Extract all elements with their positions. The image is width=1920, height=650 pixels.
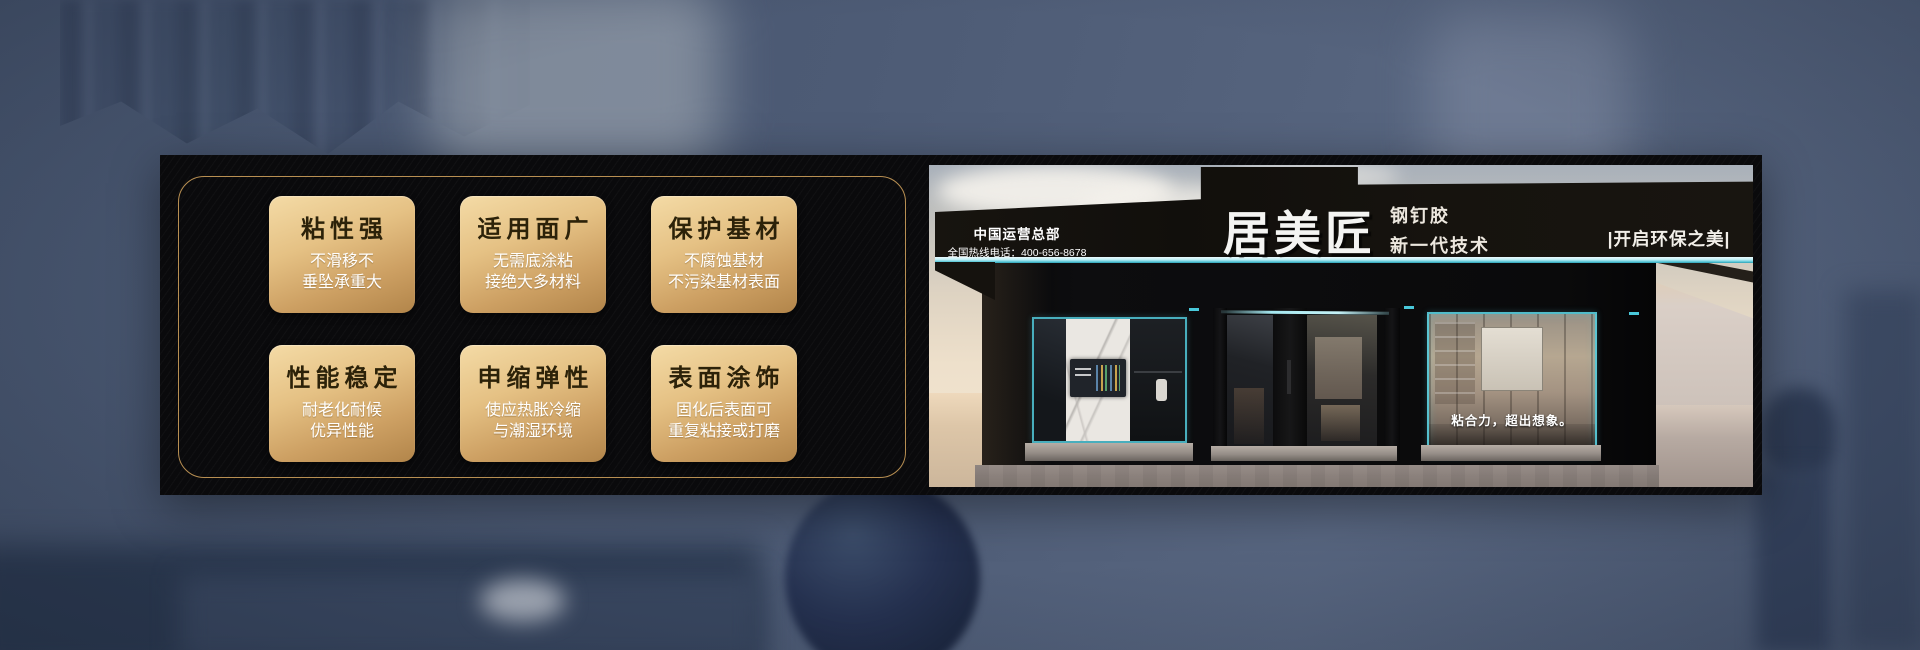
pavement — [975, 465, 1659, 487]
ground-right — [1656, 405, 1753, 487]
card-line-2: 与潮湿环境 — [460, 421, 606, 442]
card-subtitle: 不腐蚀基材 不污染基材表面 — [651, 251, 797, 293]
cyan-accent-dash — [1629, 312, 1639, 315]
card-line-2: 垂坠承重大 — [269, 272, 415, 293]
card-title: 粘性强 — [269, 209, 415, 244]
door-handle — [1287, 360, 1291, 394]
card-subtitle: 不滑移不 垂坠承重大 — [269, 251, 415, 293]
awning-underside — [935, 262, 995, 300]
card-title: 性能稳定 — [269, 358, 415, 393]
door-glass-left — [1227, 315, 1273, 455]
display-window-left — [1032, 317, 1187, 443]
card-line-2: 不污染基材表面 — [651, 272, 797, 293]
step-plinth — [1025, 443, 1193, 461]
window-slogan-text: 粘合力，超出想象。 — [1429, 410, 1595, 429]
feature-card-adhesion: 粘性强 不滑移不 垂坠承重大 — [269, 196, 415, 313]
card-line-2: 优异性能 — [269, 421, 415, 442]
brand-name: 居美匠 — [1223, 195, 1376, 264]
display-screen — [1070, 359, 1126, 397]
interior-shelf — [1134, 371, 1182, 373]
feature-card-wide-use: 适用面广 无需底涂粘 接绝大多材料 — [460, 196, 606, 313]
storefront-photo: 粘合力，超出想象。 中国运营总部 全国热线电话：400-656-8678 居美匠… — [929, 165, 1753, 487]
cyan-accent-dash — [1404, 306, 1414, 309]
card-line-1: 耐老化耐候 — [269, 400, 415, 421]
card-title: 保护基材 — [651, 209, 797, 244]
card-line-1: 使应热胀冷缩 — [460, 400, 606, 421]
card-title: 申缩弹性 — [460, 358, 606, 393]
feature-card-stable: 性能稳定 耐老化耐候 优异性能 — [269, 345, 415, 462]
card-line-2: 重复粘接或打磨 — [651, 421, 797, 442]
card-subtitle: 耐老化耐候 优异性能 — [269, 400, 415, 442]
card-line-1: 不滑移不 — [269, 251, 415, 272]
window-glass — [1034, 319, 1066, 441]
door-glass-right — [1307, 315, 1377, 455]
card-subtitle: 固化后表面可 重复粘接或打磨 — [651, 400, 797, 442]
card-line-1: 不腐蚀基材 — [651, 251, 797, 272]
card-line-2: 接绝大多材料 — [460, 272, 606, 293]
interior-back-window — [1481, 327, 1543, 391]
card-title: 适用面广 — [460, 209, 606, 244]
step-plinth — [1421, 445, 1601, 461]
entrance-doors — [1213, 308, 1400, 460]
screen-color-bars — [1096, 365, 1120, 391]
display-cylinder — [1156, 379, 1167, 401]
door-post-right — [1384, 308, 1400, 460]
product-name: 钢钉胶 — [1390, 202, 1490, 228]
card-title: 表面涂饰 — [651, 358, 797, 393]
screen-text-lines — [1075, 368, 1091, 380]
interior-shelves — [1435, 322, 1475, 404]
card-subtitle: 使应热胀冷缩 与潮湿环境 — [460, 400, 606, 442]
product-tagline: 新一代技术 — [1390, 232, 1490, 258]
eco-slogan: |开启环保之美| — [1589, 226, 1749, 251]
display-window-right: 粘合力，超出想象。 — [1427, 312, 1597, 458]
hotline-label: 全国热线电话：400-656-8678 — [947, 245, 1087, 260]
step-plinth — [1211, 446, 1397, 461]
door-post-left — [1213, 308, 1227, 460]
promo-banner: 粘性强 不滑移不 垂坠承重大 适用面广 无需底涂粘 接绝大多材料 保护基材 不腐… — [160, 155, 1762, 495]
promo-banner-page: 粘性强 不滑移不 垂坠承重大 适用面广 无需底涂粘 接绝大多材料 保护基材 不腐… — [0, 0, 1920, 650]
operations-hq-label: 中国运营总部 — [947, 223, 1087, 243]
feature-card-protect-substrate: 保护基材 不腐蚀基材 不污染基材表面 — [651, 196, 797, 313]
product-text-block: 钢钉胶 新一代技术 — [1390, 202, 1490, 258]
feature-card-surface-finish: 表面涂饰 固化后表面可 重复粘接或打磨 — [651, 345, 797, 462]
card-subtitle: 无需底涂粘 接绝大多材料 — [460, 251, 606, 293]
cyan-accent-dash — [1189, 308, 1199, 311]
card-line-1: 无需底涂粘 — [460, 251, 606, 272]
feature-card-elastic: 申缩弹性 使应热胀冷缩 与潮湿环境 — [460, 345, 606, 462]
side-wall — [1656, 259, 1753, 407]
hq-text-block: 中国运营总部 全国热线电话：400-656-8678 — [947, 223, 1087, 260]
card-line-1: 固化后表面可 — [651, 400, 797, 421]
